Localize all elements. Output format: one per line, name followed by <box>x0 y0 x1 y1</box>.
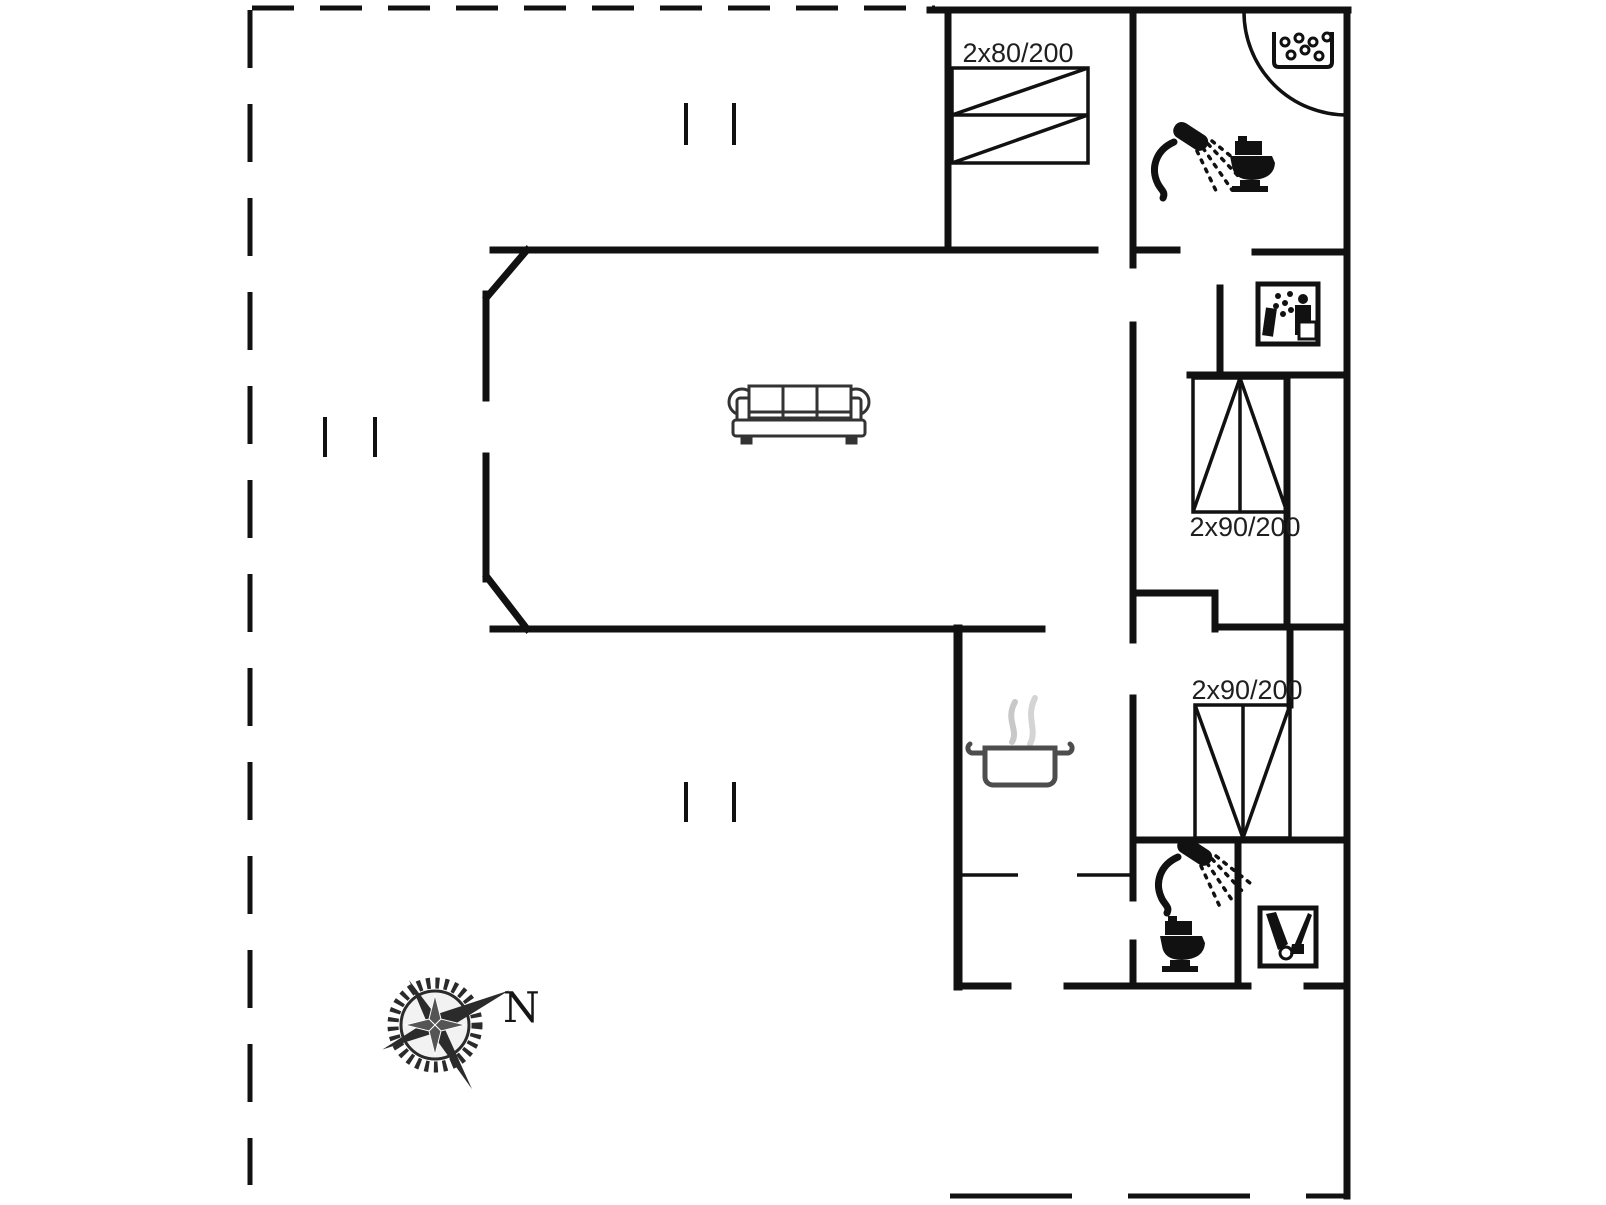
steam <box>1011 702 1015 742</box>
cooking-pot-icon <box>968 698 1072 785</box>
walls <box>486 10 1348 1196</box>
wall-livingroom-nw-diagonal <box>487 250 527 297</box>
wall-livingroom-sw-diagonal <box>487 577 527 629</box>
window-ticks <box>325 103 734 822</box>
floor-plan-drawing: 2x90/200 2x90/200 2x80/200 <box>0 0 1606 1205</box>
sofa-icon <box>729 386 869 443</box>
shower-cabin-icon <box>1258 284 1318 344</box>
bed-lower-right-label: 2x90/200 <box>1191 675 1302 705</box>
bed-top-label: 2x80/200 <box>962 38 1073 68</box>
compass-north-label: N <box>503 983 540 1032</box>
bed-upper-right-label: 2x90/200 <box>1189 512 1300 542</box>
double-bed-upper <box>1193 378 1287 512</box>
floor-plan-page: 2x90/200 2x90/200 2x80/200 <box>0 0 1606 1205</box>
toilet-icon <box>1160 916 1205 972</box>
double-bed-lower <box>1195 705 1290 838</box>
vacuum-cleaner-icon <box>1260 908 1316 966</box>
compass-rose-icon: N <box>379 976 540 1092</box>
double-bed-top <box>952 68 1088 163</box>
floor-drain-icon <box>1274 32 1332 67</box>
toilet-icon <box>1230 136 1275 192</box>
steam <box>1030 698 1035 744</box>
